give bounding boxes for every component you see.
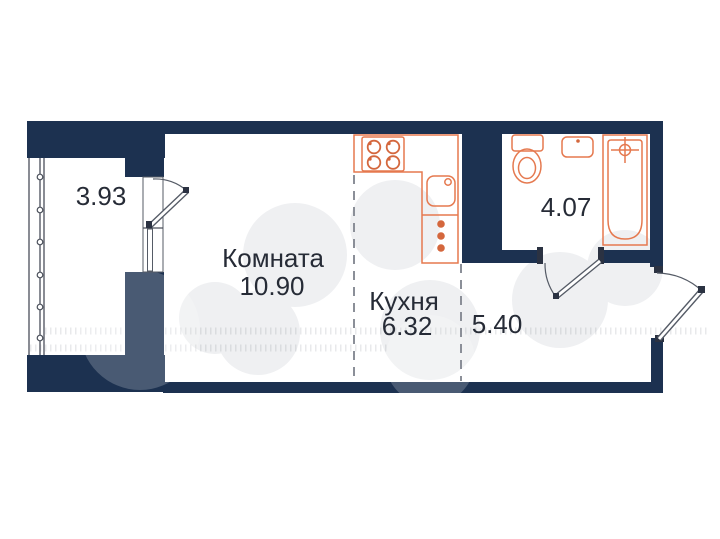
right-wall xyxy=(650,121,663,267)
balcony-area: 3.93 xyxy=(76,181,127,211)
living-room-label: Комната xyxy=(222,243,324,273)
floor-plan: Комната 10.90 Кухня 6.32 5.40 4.07 3.93 xyxy=(0,0,720,539)
toilet-icon xyxy=(512,135,543,183)
watermark-overlay xyxy=(80,270,200,390)
hallway-area: 5.40 xyxy=(472,309,523,339)
floor-plan-drawing: Комната 10.90 Кухня 6.32 5.40 4.07 3.93 xyxy=(0,0,720,539)
top-wall xyxy=(27,121,663,134)
bathroom-fixtures xyxy=(512,135,647,245)
balcony-window-sash xyxy=(148,229,153,271)
kitchen-area: 6.32 xyxy=(382,311,433,341)
bathtub-icon xyxy=(603,135,647,245)
balcony-partition-upper xyxy=(125,134,164,177)
balcony-glazing xyxy=(29,158,44,355)
bathroom-bottom-wall-left xyxy=(502,250,543,263)
washbasin-icon xyxy=(562,137,593,157)
bathroom-bottom-wall-right xyxy=(598,250,650,263)
duct-wall xyxy=(462,134,502,263)
stove-icon xyxy=(362,137,404,171)
entrance-corner-wall xyxy=(651,338,663,383)
bathroom-area: 4.07 xyxy=(541,192,592,222)
living-room-area: 10.90 xyxy=(239,271,304,301)
